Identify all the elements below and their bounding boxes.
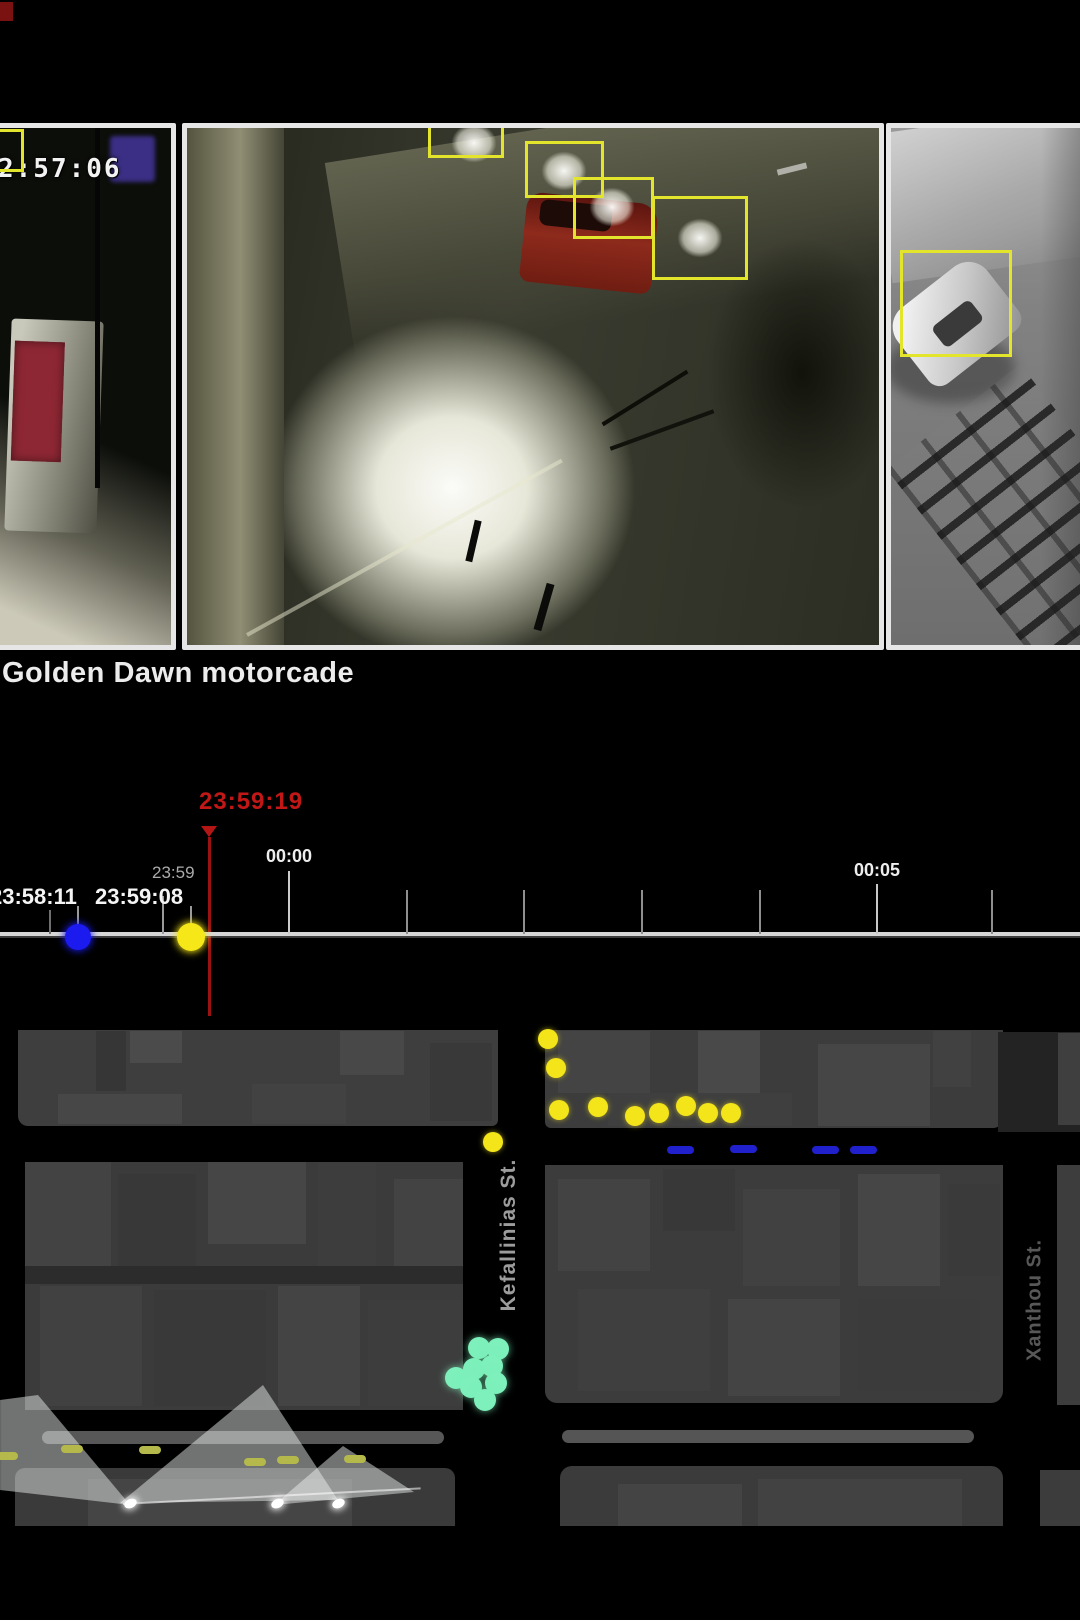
map-building [96,1031,126,1091]
map-building [394,1179,463,1267]
map-building [618,1484,742,1526]
map-building [818,1044,930,1126]
map-building [948,1184,1000,1276]
map-building [368,1300,463,1406]
vehicle-track-dash-olive[interactable] [344,1455,366,1463]
map-building [430,1043,492,1121]
track-dot-yellow[interactable] [625,1106,645,1126]
map-building [40,1286,142,1406]
map-building [858,1299,980,1391]
track-dot-yellow[interactable] [649,1103,669,1123]
vehicle-track-dash-olive[interactable] [244,1458,266,1466]
forensic-video-analysis-screen: 2:57:06 [0,0,1080,1620]
vehicle-track-dash-olive[interactable] [0,1452,18,1460]
vehicle-track-dash-blue[interactable] [667,1146,694,1154]
track-dot-yellow[interactable] [721,1103,741,1123]
map-building [933,1031,971,1087]
track-dot-yellow[interactable] [676,1096,696,1116]
map-building [1058,1033,1080,1125]
track-dot-yellow[interactable] [698,1103,718,1123]
track-dot-yellow[interactable] [483,1132,503,1152]
map-building [58,1094,182,1124]
vehicle-track-dash-olive[interactable] [277,1456,299,1464]
vehicle-track-dash-blue[interactable] [812,1146,839,1154]
map-building [154,1290,266,1406]
map-building [208,1162,306,1244]
map-building [728,1299,840,1396]
track-dot-green[interactable] [474,1389,496,1411]
map-building [25,1162,111,1268]
track-dot-yellow[interactable] [546,1058,566,1078]
map-building [278,1286,360,1406]
vehicle-track-dash-blue[interactable] [730,1145,757,1153]
map-building [663,1169,735,1231]
map-building [318,1162,376,1268]
map-building [578,1289,710,1391]
map-building [558,1179,650,1271]
map-building [118,1174,196,1268]
vehicle-track-dash-olive[interactable] [61,1445,83,1453]
map-building [252,1084,346,1124]
track-dot-yellow[interactable] [588,1097,608,1117]
street-label: Kefallinias St. [497,1159,521,1312]
map-building [25,1266,463,1284]
vehicle-track-dash-blue[interactable] [850,1146,877,1154]
map-building [130,1031,182,1063]
vehicle-track-dash-olive[interactable] [139,1446,161,1454]
map[interactable]: Kefallinias St.Xanthou St. [0,0,1080,1620]
track-dot-yellow[interactable] [538,1029,558,1049]
map-building [743,1189,840,1286]
map-building [858,1174,940,1286]
map-building [340,1031,404,1075]
track-dot-yellow[interactable] [549,1100,569,1120]
street-median [562,1430,974,1443]
map-building [1040,1470,1080,1526]
street-label: Xanthou St. [1024,1239,1047,1361]
map-building [558,1031,650,1093]
map-building [1057,1165,1080,1405]
map-building [758,1479,962,1526]
